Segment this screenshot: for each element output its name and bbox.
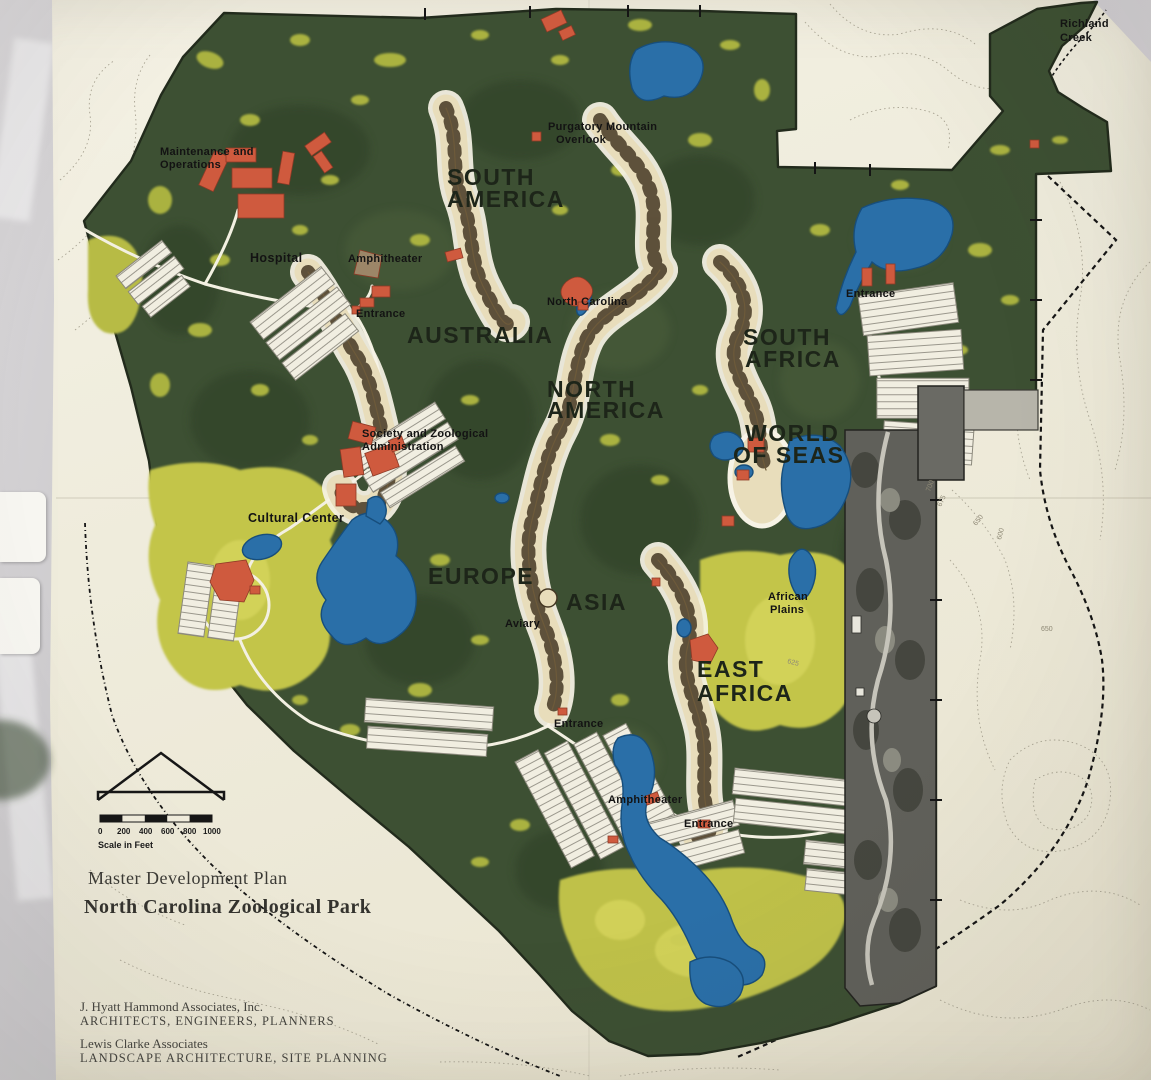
scale-tick: 400 [139, 827, 153, 836]
label-australia: AUSTRALIA [407, 322, 553, 348]
label-world-of-seas-line2: OF SEAS [733, 442, 844, 468]
contour-label: 650 [972, 514, 985, 528]
scale-bar: 0 200 400 600 800 1000 Scale in Feet [98, 815, 221, 850]
label-purgatory-line1: Purgatory Mountain [548, 121, 657, 133]
firm1-name: J. Hyatt Hammond Associates, Inc. [80, 1000, 388, 1013]
scale-caption: Scale in Feet [98, 840, 153, 850]
north-arrow [98, 753, 224, 800]
label-amphitheater-west: Amphitheater [348, 253, 423, 265]
contour-label: 650 [1041, 626, 1053, 633]
label-north-america-line2: AMERICA [547, 397, 665, 423]
scale-tick: 0 [98, 827, 103, 836]
label-entrance-west: Entrance [356, 308, 405, 320]
label-purgatory-line2: Overlook [556, 134, 607, 146]
label-entrance-southeast: Entrance [684, 818, 733, 830]
label-north-carolina: North Carolina [547, 296, 628, 308]
contour-label: 600 [996, 527, 1006, 540]
label-african-plains-line2: Plains [770, 604, 804, 616]
label-south-africa-line2: AFRICA [745, 346, 841, 372]
label-entrance-northeast: Entrance [846, 288, 895, 300]
label-entrance-south: Entrance [554, 718, 603, 730]
label-maintenance-line2: Operations [160, 159, 221, 171]
aviary-dome [539, 589, 557, 607]
scale-tick: 600 [161, 827, 175, 836]
label-richland-creek-line1: Richland [1060, 18, 1109, 30]
label-asia: ASIA [566, 589, 627, 615]
firm2-name: Lewis Clarke Associates [80, 1037, 388, 1050]
plan-title: Master Development Plan [88, 868, 287, 889]
firm1-role: ARCHITECTS, ENGINEERS, PLANNERS [80, 1015, 388, 1028]
label-administration-line1: Society and Zoological [362, 428, 488, 440]
scale-tick: 1000 [203, 827, 221, 836]
label-maintenance-line1: Maintenance and [160, 146, 254, 158]
label-cultural-center: Cultural Center [248, 511, 344, 525]
label-administration-line2: Administration [362, 441, 444, 453]
label-aviary: Aviary [505, 618, 541, 630]
photographed-map: 700 675 650 600 650 625 SOUTH AMERICA AU… [0, 0, 1151, 1080]
label-east-africa-line1: EAST [697, 656, 764, 682]
label-richland-creek-line2: Creek [1060, 32, 1093, 44]
label-hospital: Hospital [250, 251, 303, 265]
scale-tick: 200 [117, 827, 131, 836]
existing-zoo-corridor [845, 386, 1038, 1006]
firm2-role: LANDSCAPE ARCHITECTURE, SITE PLANNING [80, 1052, 388, 1065]
label-amphitheater-south: Amphitheater [608, 794, 683, 806]
contour-label: 675 [936, 494, 947, 508]
scale-tick: 800 [183, 827, 197, 836]
park-name: North Carolina Zoological Park [84, 896, 371, 919]
label-african-plains-line1: African [768, 591, 808, 603]
label-europe: EUROPE [428, 563, 534, 589]
label-south-america-line2: AMERICA [447, 186, 565, 212]
label-east-africa-line2: AFRICA [697, 680, 793, 706]
credits-block: J. Hyatt Hammond Associates, Inc. ARCHIT… [80, 1000, 388, 1065]
